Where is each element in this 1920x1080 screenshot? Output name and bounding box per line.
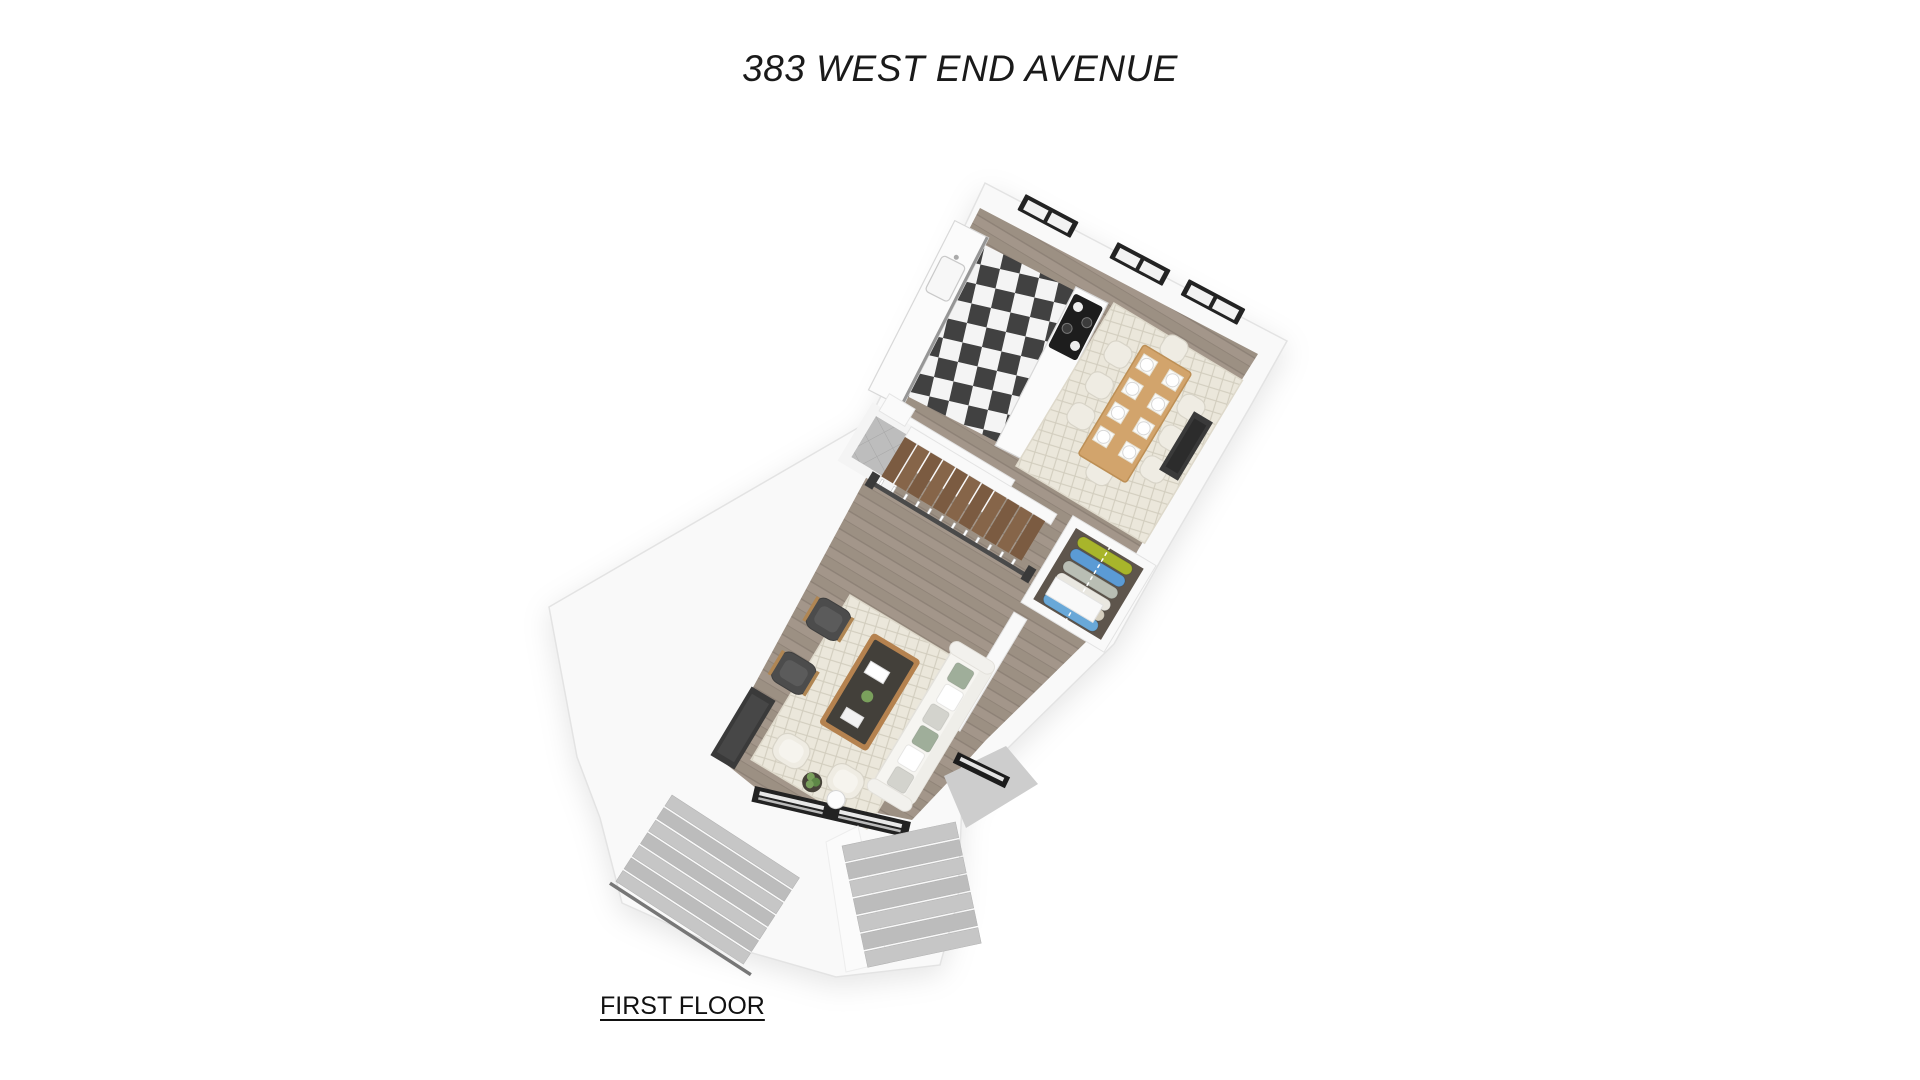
floor-label: FIRST FLOOR	[600, 992, 765, 1021]
floor-plan-figure	[0, 0, 1920, 1080]
page: 383 WEST END AVENUE	[0, 0, 1920, 1080]
